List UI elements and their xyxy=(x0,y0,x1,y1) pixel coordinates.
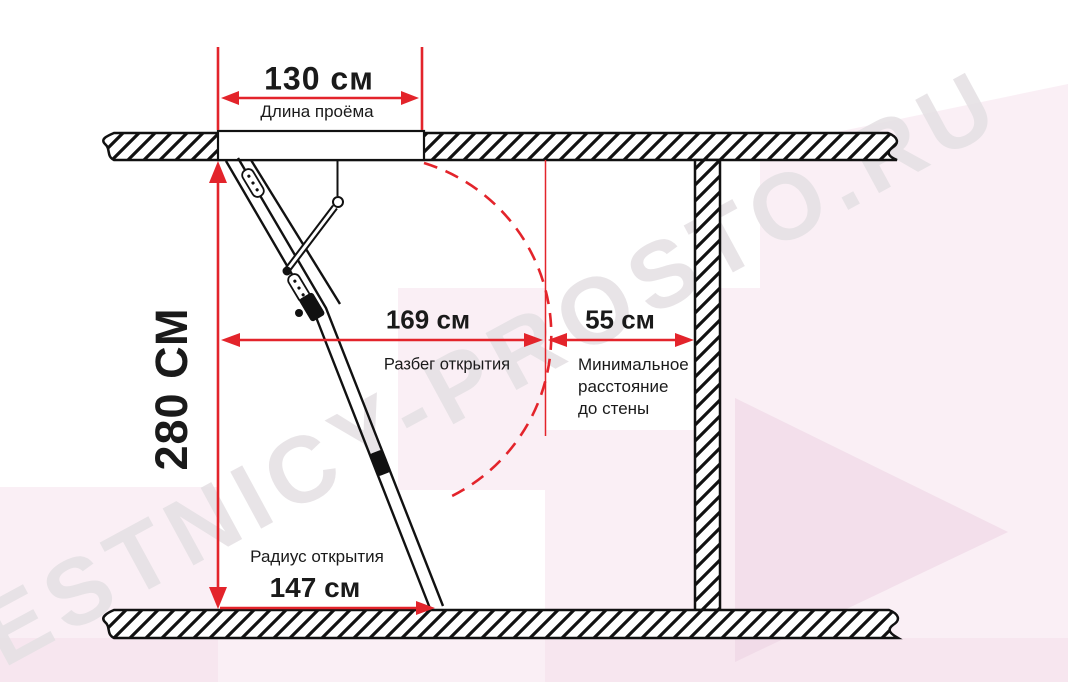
dim-label-wall-clearance: Минимальное расстояние до стены xyxy=(578,354,689,420)
floor-beam xyxy=(103,610,898,638)
ceiling-beam xyxy=(103,131,897,160)
ladder-rail-left xyxy=(226,161,431,611)
dim-value-opening-length: 130 см xyxy=(264,61,374,98)
dim-label-opening-radius: Радиус открытия xyxy=(250,547,384,567)
dim-value-wall-clearance: 55 см xyxy=(585,305,655,336)
strut-joint xyxy=(283,267,292,276)
dim-value-height: 280 СМ xyxy=(146,308,198,471)
hatch-opening-box xyxy=(218,131,424,160)
dim-value-opening-run: 169 см xyxy=(386,305,470,336)
dim-value-opening-radius: 147 см xyxy=(270,572,361,604)
wall-column xyxy=(695,160,720,610)
diagram-canvas: LESTNICY-PROSTO.RU xyxy=(0,0,1068,682)
dim-label-opening-run: Разбег открытия xyxy=(384,356,510,375)
attic-ladder xyxy=(226,158,443,611)
rod-joint xyxy=(333,197,343,207)
dim-label-opening-length: Длина проёма xyxy=(260,102,373,122)
